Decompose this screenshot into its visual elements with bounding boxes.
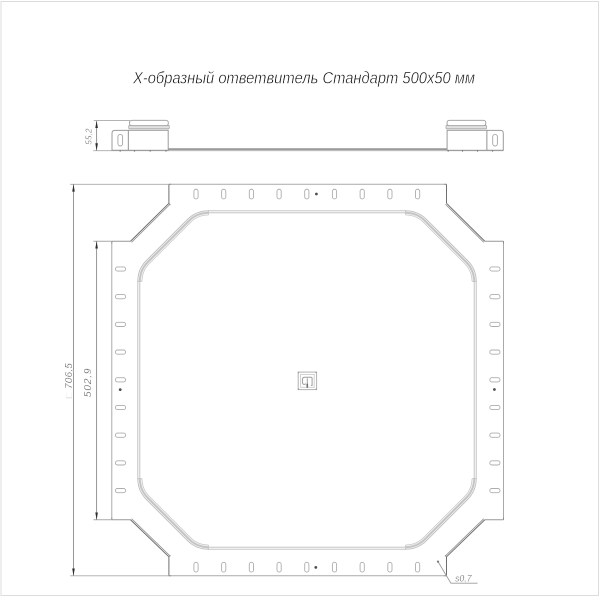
svg-text:s0,7: s0,7 bbox=[455, 573, 473, 583]
svg-text:□ 706,5: □ 706,5 bbox=[64, 363, 75, 398]
svg-text:502,9: 502,9 bbox=[83, 368, 94, 398]
svg-text:Х-образный ответвитель Стандар: Х-образный ответвитель Стандарт 500х50 м… bbox=[132, 69, 475, 87]
svg-text:55,2: 55,2 bbox=[83, 128, 93, 145]
